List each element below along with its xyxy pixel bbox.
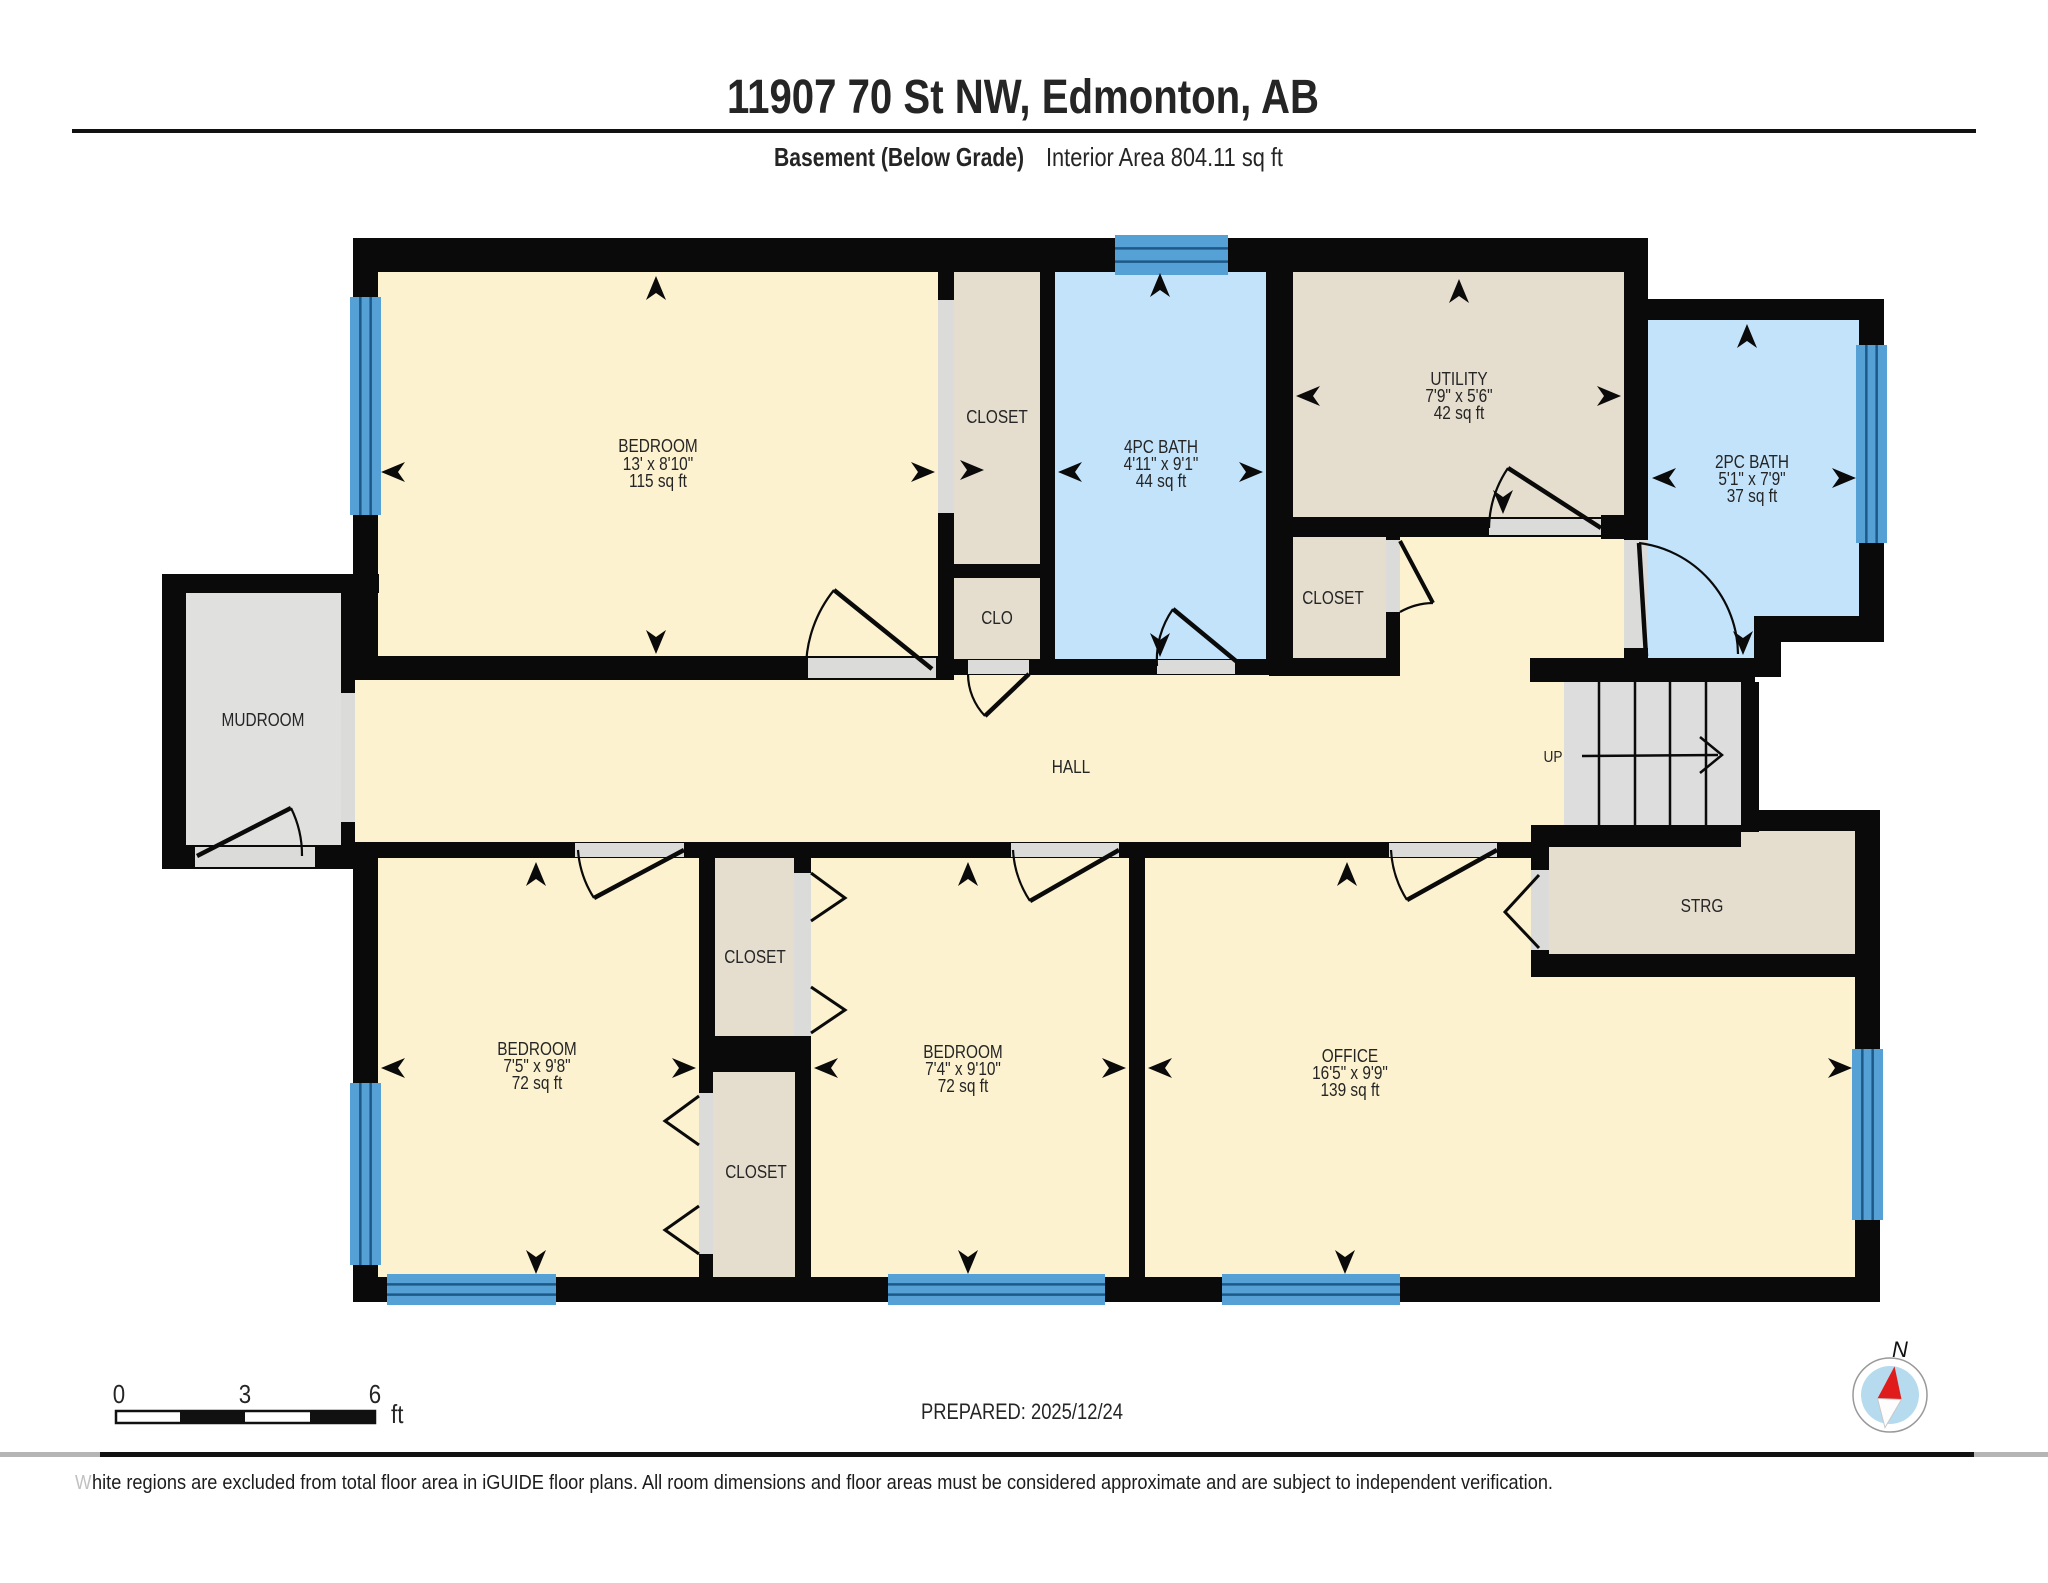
svg-text:Basement (Below Grade): Basement (Below Grade) <box>774 142 1024 172</box>
svg-text:42 sq ft: 42 sq ft <box>1434 403 1485 423</box>
svg-text:UP: UP <box>1544 749 1563 766</box>
svg-text:CLOSET: CLOSET <box>966 407 1028 427</box>
svg-text:STRG: STRG <box>1681 896 1724 916</box>
svg-text:ft: ft <box>391 1399 404 1429</box>
svg-text:6: 6 <box>369 1379 381 1409</box>
svg-text:11907 70 St NW, Edmonton, AB: 11907 70 St NW, Edmonton, AB <box>727 71 1319 124</box>
svg-text:BEDROOM: BEDROOM <box>618 436 698 456</box>
svg-text:N: N <box>1892 1337 1908 1362</box>
svg-text:44 sq ft: 44 sq ft <box>1136 471 1187 491</box>
svg-text:PREPARED: 2025/12/24: PREPARED: 2025/12/24 <box>921 1399 1123 1424</box>
svg-text:3: 3 <box>239 1379 251 1409</box>
svg-text:hite regions are excluded from: hite regions are excluded from total flo… <box>92 1472 1553 1494</box>
svg-text:CLOSET: CLOSET <box>725 1162 787 1182</box>
svg-text:MUDROOM: MUDROOM <box>222 710 305 730</box>
svg-text:HALL: HALL <box>1052 757 1091 777</box>
svg-text:115 sq ft: 115 sq ft <box>629 471 687 491</box>
svg-text:72 sq ft: 72 sq ft <box>938 1076 989 1096</box>
svg-text:0: 0 <box>113 1379 125 1409</box>
svg-text:CLO: CLO <box>981 608 1013 628</box>
svg-text:37 sq ft: 37 sq ft <box>1727 486 1778 506</box>
svg-text:CLOSET: CLOSET <box>1302 588 1364 608</box>
svg-text:Interior Area 804.11 sq ft: Interior Area 804.11 sq ft <box>1046 142 1284 172</box>
svg-text:139 sq ft: 139 sq ft <box>1321 1080 1380 1100</box>
svg-text:CLOSET: CLOSET <box>724 947 786 967</box>
svg-text:72 sq ft: 72 sq ft <box>512 1073 563 1093</box>
svg-text:W: W <box>75 1472 92 1494</box>
